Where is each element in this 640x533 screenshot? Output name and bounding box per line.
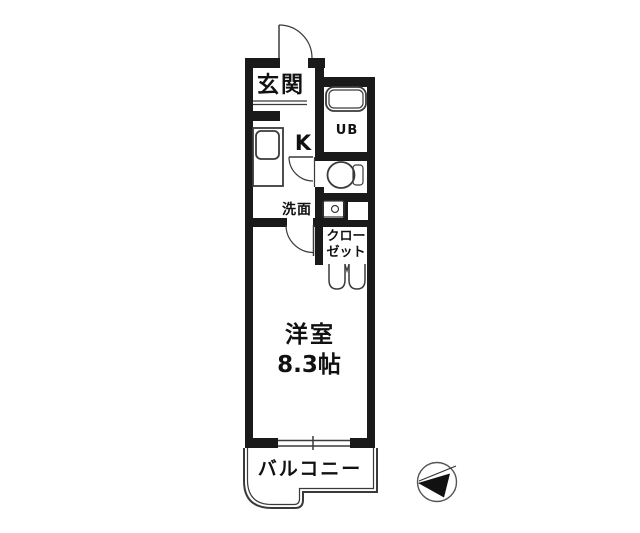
closet-door-left-arc [329,264,345,289]
kitchen-sink [256,131,279,159]
main-room-label: 洋室 [285,321,335,348]
wall-center-upper [315,58,324,157]
main-room-size-label: 8.3帖 [277,352,341,378]
wall-closet-left [315,227,323,265]
washer-drain [332,206,339,213]
wall-entrance-top-left [245,58,280,68]
entrance-door-arc [279,25,312,58]
closet-label-line2: ゼット [326,244,365,260]
toilet-bowl [328,162,355,188]
washer-pan [323,201,344,217]
kitchen-label: K [295,131,312,155]
north-compass-icon [418,463,457,502]
wall-unitbath-toilet [315,152,375,161]
wall-entrance-kitchen-stub [245,111,280,121]
compass-needle [418,474,450,498]
balcony-label: バルコニー [258,458,363,480]
wall-unitbath-top [315,77,375,87]
wall-washroom-room-left [245,218,287,227]
pipe-space-window [348,202,368,220]
main-room-door-arc [286,225,314,253]
floor-plan-page: 玄関 K UB 洗面 クロー ゼット 洋室 8.3帖 バルコニー [0,0,640,533]
wall-right [367,77,375,448]
entrance-room-label: 玄関 [257,73,305,98]
wall-bottom-left [245,438,278,448]
wall-bottom-right [350,438,375,448]
unit-bath-label: UB [336,123,358,138]
bathtub-inner [329,90,363,108]
kitchen-washroom-door-arc [289,157,313,181]
floor-plan-canvas: 玄関 K UB 洗面 クロー ゼット 洋室 8.3帖 バルコニー [0,0,640,533]
washroom-label: 洗面 [282,201,312,218]
closet-label-line1: クロー [326,229,365,244]
closet-door-right-arc [349,264,365,289]
